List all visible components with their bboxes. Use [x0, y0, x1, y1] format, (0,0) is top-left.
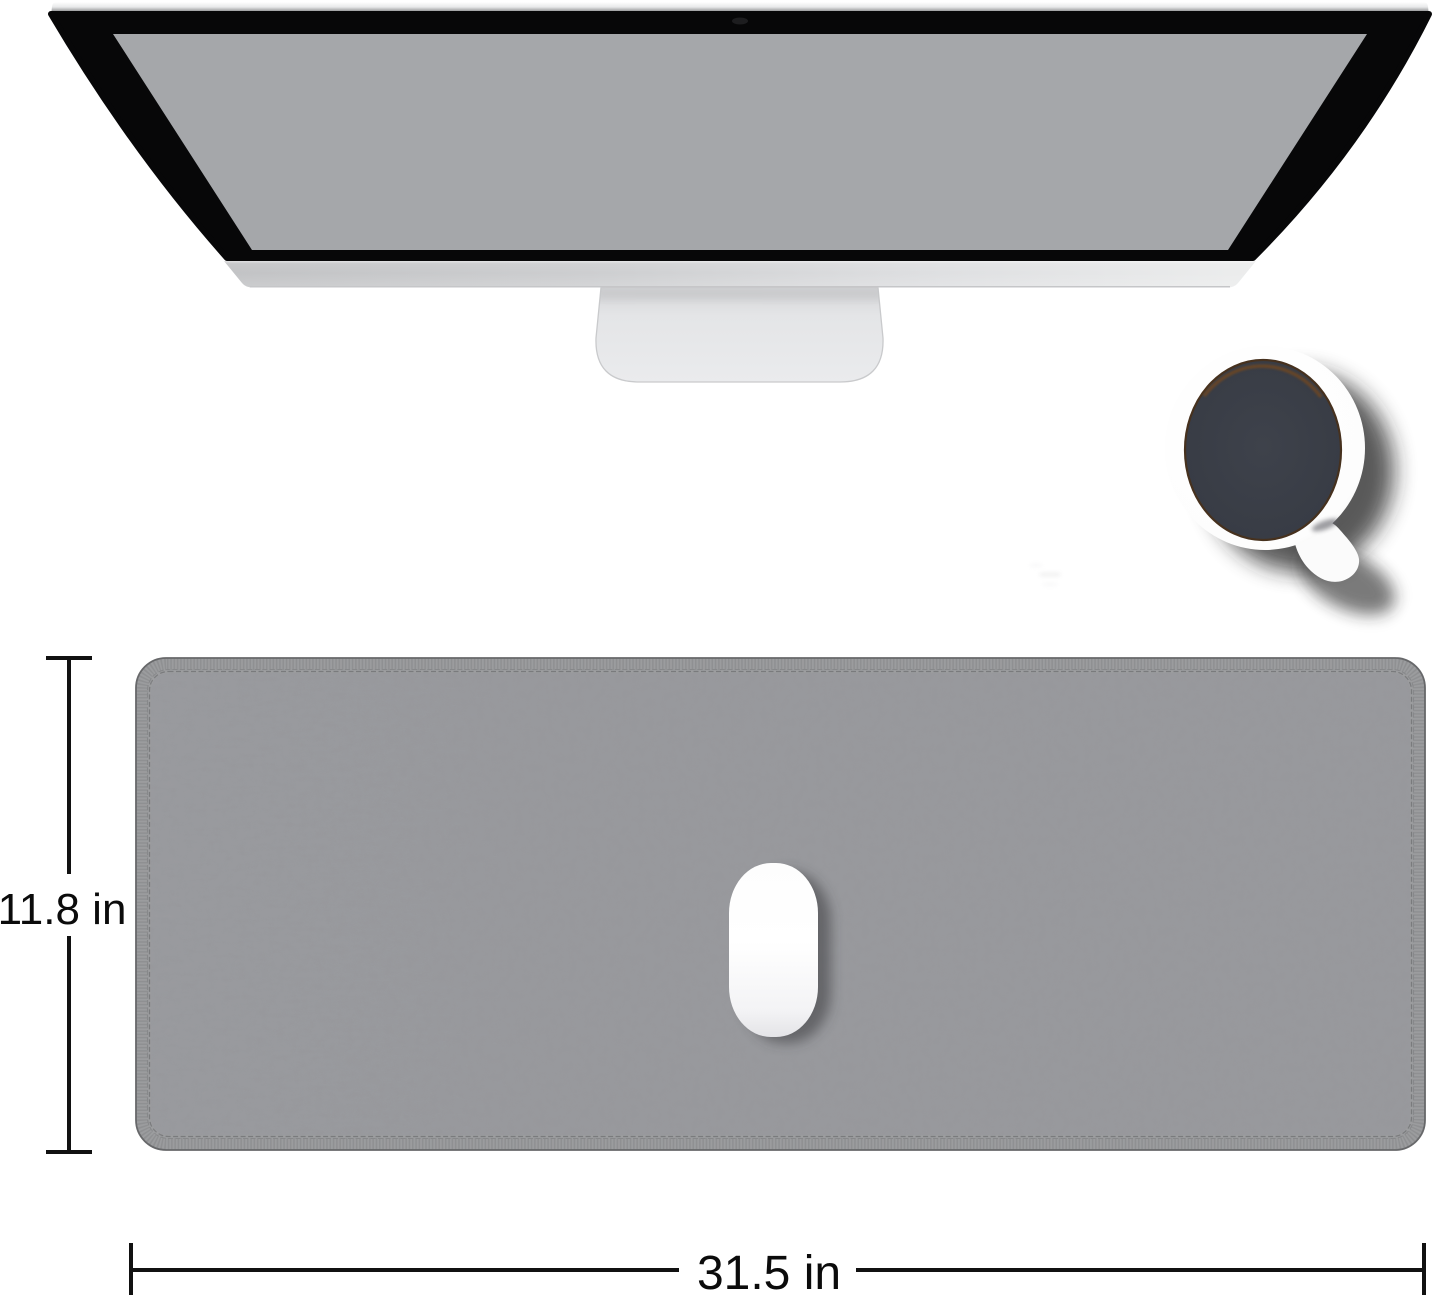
svg-text:31.5 in: 31.5 in — [697, 1247, 841, 1296]
svg-text:11.8 in: 11.8 in — [0, 885, 126, 934]
